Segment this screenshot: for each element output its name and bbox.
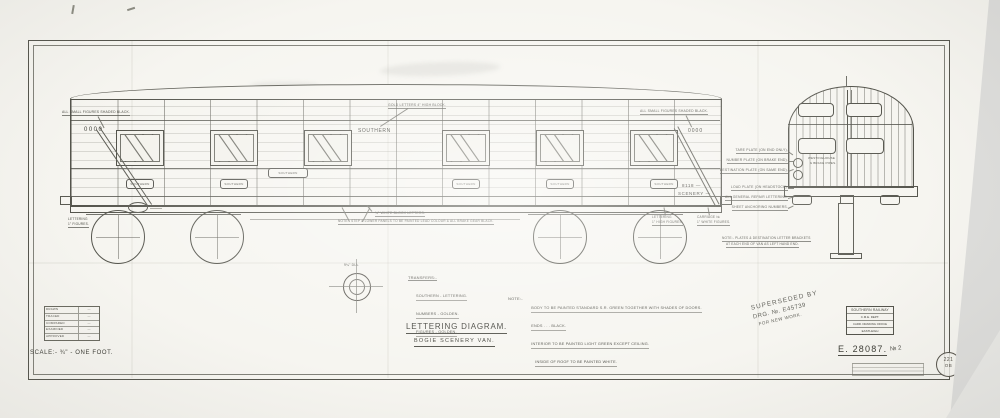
southern-plate: SOUTHERN	[452, 179, 480, 189]
end-fitting	[793, 158, 803, 168]
end-note-line2: AT EACH END OF VAN AS LEFT HAND END.	[726, 242, 799, 248]
van-rail-line	[70, 196, 720, 197]
revision-table: DRAWN— TRACED— COMPARED— EXAMINED— APPRO…	[44, 306, 100, 341]
leader-line	[788, 161, 794, 162]
end-panel	[798, 103, 834, 117]
van-window	[210, 130, 258, 166]
title-block-dept: C.M.E. DEPT.	[847, 314, 893, 321]
end-figures-left: 0000	[84, 127, 103, 133]
table-row: APPROVED—	[45, 334, 99, 340]
van-rail-line	[70, 120, 720, 121]
stack-general-repair: ALL GENERAL REPAIR LETTERING.	[725, 195, 788, 201]
table-row: EXAMINED—	[45, 327, 99, 334]
office-date-stamp	[852, 363, 924, 376]
westinghouse-label2: & BRAKE PIPES.	[810, 161, 836, 166]
wheel	[91, 210, 145, 264]
row-value: —	[79, 327, 99, 333]
southern-plate-wide: SOUTHERN	[268, 168, 308, 178]
southern-plate: SOUTHERN	[650, 179, 678, 189]
stack-sheet-anchoring: SHEET ANCHORING NUMBERS.	[732, 205, 788, 211]
westinghouse-label: WESTINGHOUSE	[808, 156, 835, 161]
lettering-label-a2: 1" HIGH FIGURES.	[652, 220, 683, 226]
drawing-subtitle: BOGIE SCENERY VAN.	[414, 338, 495, 347]
buffer-left	[60, 196, 72, 205]
brake-wheel-detail-inner	[349, 279, 365, 295]
window-glazing	[308, 134, 348, 162]
row-label: COMPARED	[45, 321, 79, 327]
window-glazing	[634, 134, 674, 162]
support-leg	[838, 203, 854, 255]
centreline-vertical	[356, 259, 357, 313]
note-line: INTERIOR TO BE PAINTED LIGHT GREEN EXCEP…	[531, 341, 649, 349]
lettering-label-a1: LETTERING	[652, 215, 672, 220]
row-value: —	[79, 321, 99, 327]
row-label: TRACED	[45, 314, 79, 320]
note-line: INSIDE OF ROOF TO BE PAINTED WHITE.	[535, 359, 617, 367]
table-row: COMPARED—	[45, 321, 99, 328]
stack-load-plate: LOAD PLATE (ON HEADSTOCK).	[731, 185, 788, 191]
window-glazing	[540, 134, 580, 162]
note-line: ENDS . . . BLACK.	[531, 323, 566, 331]
table-row: TRACED—	[45, 314, 99, 321]
end-panel	[798, 138, 836, 154]
lettering-label-b1: CARRIAGE №	[697, 215, 720, 220]
stack-number-plate: NUMBER PLATE (ON BRAKE END).	[727, 158, 789, 164]
end-panel	[846, 103, 882, 117]
end-note-line1: NOTE:- PLATES & DESTINATION LETTER BRACK…	[722, 236, 811, 242]
lettering-label-left-2: 1" FIGURES.	[68, 222, 89, 228]
class-word: SCENERY —	[678, 191, 711, 196]
title-block: SOUTHERN RAILWAY C.M.E. DEPT. CARR. DRAW…	[846, 306, 894, 335]
transfers-line: SOUTHERN - LETTERING.	[416, 293, 467, 301]
note-gold-letters: GOLD LETTERS 4" HIGH BLOCK.	[388, 103, 446, 109]
table-row: DRAWN—	[45, 307, 99, 314]
wheel	[533, 210, 587, 264]
southern-plate: SOUTHERN	[546, 179, 574, 189]
note-white-block: ¾" WHITE BLOCK LETTERS.	[375, 211, 425, 217]
tare-plate-oval	[128, 202, 148, 213]
row-value: —	[79, 334, 99, 340]
van-window	[630, 130, 678, 166]
van-rail-line	[70, 168, 720, 169]
blueprint-canvas-print: SOUTHERN SOUTHERN SOUTHERN SOUTHERN SOUT…	[0, 0, 1000, 418]
transfers-line: NUMBERS - GOLDEN.	[416, 311, 459, 319]
end-buffer-right	[880, 195, 900, 205]
drawing-number-suffix: № 2	[890, 345, 902, 352]
wheel	[190, 210, 244, 264]
lettering-label-b2: 1" WHITE FIGURES.	[697, 220, 730, 226]
support-base	[830, 253, 862, 259]
southern-lettering: SOUTHERN	[358, 128, 391, 134]
roof-vent-pipe	[846, 76, 847, 86]
note-small-figures-left: ALL SMALL FIGURES SHADED BLACK.	[62, 110, 130, 116]
wagon-number: 8118 —	[682, 183, 701, 188]
row-label: APPROVED	[45, 334, 79, 340]
end-panel	[846, 138, 884, 154]
title-block-railway: SOUTHERN RAILWAY	[847, 307, 893, 314]
stack-destination-plate: DESTINATION PLATE (ON SAME END).	[720, 168, 788, 174]
lettering-label-left-1: LETTERING	[68, 217, 88, 222]
van-window	[442, 130, 490, 166]
fold-mark	[127, 7, 135, 11]
row-value: —	[79, 307, 99, 313]
note-step: NOTE:- STEP & LOWER PANELS TO BE PAINTED…	[338, 219, 494, 225]
southern-plate: SOUTHERN	[220, 179, 248, 189]
row-label: DRAWN	[45, 307, 79, 313]
fold-mark	[71, 5, 74, 14]
end-fitting	[793, 170, 803, 180]
note-heading: NOTE:-	[508, 296, 523, 301]
title-block-office: CARR. DRAWING OFFICE	[847, 321, 893, 328]
window-glazing	[446, 134, 486, 162]
row-value: —	[79, 314, 99, 320]
title-block-location: EASTLEIGH	[847, 328, 893, 334]
end-rail-line	[788, 124, 912, 125]
van-window	[536, 130, 584, 166]
end-buffer-left	[792, 195, 812, 205]
window-glazing	[120, 134, 160, 162]
stack-tare-plate: TARE PLATE (ON END ONLY).	[736, 148, 788, 154]
end-figures-right: 0000	[688, 128, 703, 134]
painting-note-block: NOTE:- BODY TO BE PAINTED STANDARD S.R. …	[508, 296, 702, 368]
van-window	[304, 130, 352, 166]
drawing-number: E. 28087.	[838, 344, 887, 356]
window-glazing	[214, 134, 254, 162]
note-small-figures-right: ALL SMALL FIGURES SHADED BLACK.	[640, 109, 708, 115]
drawing-title: LETTERING DIAGRAM.	[406, 322, 507, 334]
leader-line	[788, 188, 794, 189]
row-label: EXAMINED	[45, 327, 79, 333]
note-line: BODY TO BE PAINTED STANDARD S.R. GREEN T…	[531, 305, 701, 313]
scale-label: SCALE:- ¾" - ONE FOOT.	[30, 350, 113, 356]
tare-scribble	[150, 205, 162, 209]
transfers-heading: TRANSFERS:-	[408, 275, 437, 281]
